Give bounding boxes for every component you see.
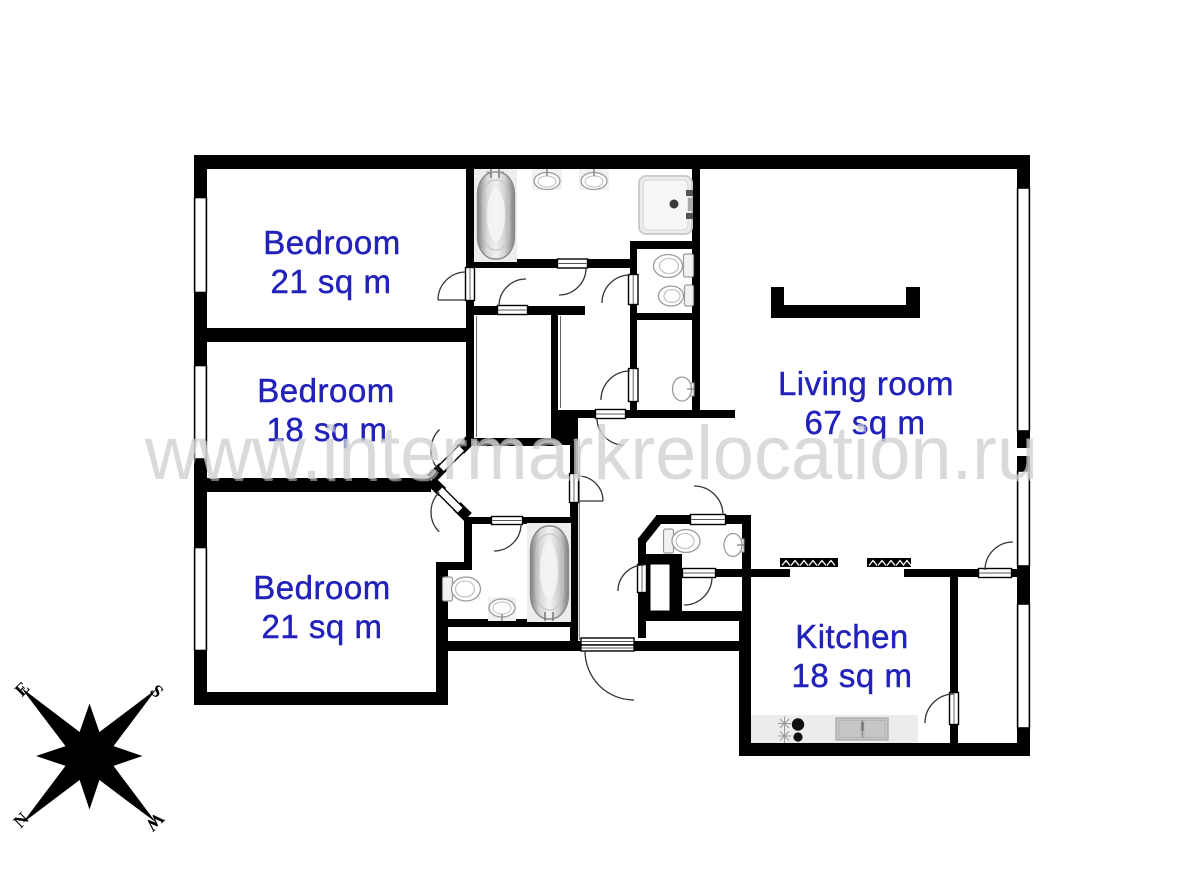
svg-text:Bedroom: Bedroom: [263, 224, 400, 261]
svg-text:Living room: Living room: [778, 365, 954, 402]
svg-text:Bedroom: Bedroom: [257, 372, 394, 409]
svg-text:Kitchen: Kitchen: [795, 618, 909, 655]
svg-text:www.intermarkrelocation.ru: www.intermarkrelocation.ru: [144, 411, 1038, 496]
svg-text:21 sq m: 21 sq m: [271, 263, 392, 300]
svg-text:21 sq m: 21 sq m: [262, 608, 383, 645]
svg-text:18 sq m: 18 sq m: [792, 657, 913, 694]
svg-text:Bedroom: Bedroom: [253, 569, 390, 606]
